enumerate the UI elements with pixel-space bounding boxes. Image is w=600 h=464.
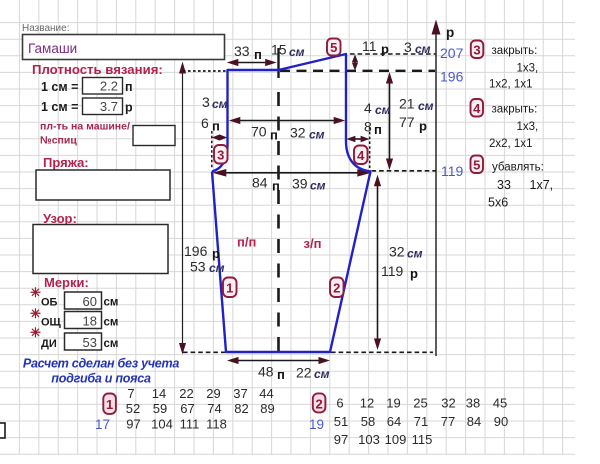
svg-text:104: 104 (151, 417, 173, 432)
svg-text:убавлять:: убавлять: (492, 162, 544, 174)
svg-text:Расчет сделан без учета: Расчет сделан без учета (23, 357, 180, 371)
svg-text:р: р (381, 42, 389, 57)
svg-text:см: см (209, 261, 225, 275)
svg-text:32: 32 (290, 125, 306, 141)
svg-text:3: 3 (202, 94, 210, 110)
svg-text:19: 19 (309, 417, 324, 432)
svg-text:2x2, 1x1: 2x2, 1x1 (489, 138, 532, 150)
svg-text:Пряжа:: Пряжа: (43, 155, 89, 170)
svg-text:см: см (415, 42, 431, 56)
svg-text:р: р (212, 246, 220, 261)
svg-text:5: 5 (473, 158, 480, 173)
svg-text:8: 8 (364, 119, 372, 135)
svg-text:1x2, 1x1: 1x2, 1x1 (489, 79, 532, 91)
svg-text:2: 2 (333, 281, 340, 296)
svg-text:5x6: 5x6 (488, 196, 508, 210)
svg-text:закрыть:: закрыть: (492, 104, 538, 116)
svg-text:115: 115 (412, 432, 433, 447)
svg-text:п: п (374, 122, 382, 137)
svg-text:32: 32 (441, 396, 455, 411)
svg-text:84: 84 (467, 414, 481, 429)
svg-text:3.7: 3.7 (100, 99, 118, 114)
svg-text:70: 70 (251, 124, 267, 140)
svg-text:38: 38 (466, 396, 480, 411)
svg-text:ОБ: ОБ (41, 297, 58, 309)
svg-text:52: 52 (126, 401, 140, 416)
svg-text:74: 74 (207, 401, 221, 416)
svg-text:1x3,: 1x3, (517, 63, 539, 75)
svg-text:р: р (410, 266, 418, 281)
svg-text:Мерки:: Мерки: (44, 275, 89, 290)
svg-text:71: 71 (414, 414, 428, 429)
svg-text:19: 19 (386, 396, 400, 411)
svg-text:32: 32 (389, 244, 405, 260)
svg-text:5: 5 (330, 40, 337, 55)
svg-text:111: 111 (180, 417, 200, 432)
svg-text:89: 89 (260, 401, 274, 416)
svg-text:33: 33 (497, 178, 511, 192)
svg-text:118: 118 (206, 417, 227, 432)
svg-text:п: п (254, 47, 262, 62)
svg-text:см: см (407, 247, 423, 261)
svg-text:44: 44 (259, 386, 273, 401)
svg-text:1 см =: 1 см = (41, 100, 78, 114)
svg-text:4: 4 (473, 101, 481, 116)
svg-text:39: 39 (292, 176, 308, 192)
svg-text:см: см (212, 97, 228, 111)
svg-text:45: 45 (493, 396, 507, 411)
svg-text:103: 103 (358, 432, 380, 447)
svg-text:53: 53 (190, 259, 206, 275)
svg-text:3: 3 (217, 148, 224, 163)
svg-text:п: п (272, 179, 280, 194)
svg-text:✳: ✳ (30, 306, 41, 321)
svg-text:см: см (418, 99, 434, 113)
svg-text:77: 77 (441, 414, 455, 429)
svg-text:4: 4 (364, 100, 372, 116)
svg-text:подгиба и пояса: подгиба и пояса (51, 372, 151, 386)
svg-text:закрыть:: закрыть: (492, 45, 538, 57)
svg-text:82: 82 (234, 401, 248, 416)
svg-text:53: 53 (83, 335, 97, 350)
svg-text:р: р (446, 25, 454, 40)
svg-text:97: 97 (334, 432, 348, 447)
svg-text:см: см (375, 103, 391, 117)
svg-text:18: 18 (83, 314, 97, 329)
svg-text:р: р (419, 119, 427, 134)
svg-text:22: 22 (296, 365, 312, 381)
svg-text:см: см (104, 317, 119, 329)
svg-text:ОЩ: ОЩ (41, 317, 62, 329)
svg-text:з/п: з/п (304, 236, 322, 251)
svg-text:22: 22 (179, 386, 193, 401)
svg-text:207: 207 (440, 45, 464, 61)
svg-text:37: 37 (233, 386, 247, 401)
svg-text:2.2: 2.2 (100, 79, 118, 94)
svg-text:п: п (125, 80, 133, 94)
svg-text:12: 12 (360, 396, 374, 411)
svg-text:пл-ть на машине/: пл-ть на машине/ (40, 121, 130, 133)
svg-text:1x3,: 1x3, (517, 121, 539, 133)
svg-text:7: 7 (127, 386, 134, 401)
svg-text:21: 21 (399, 96, 415, 112)
svg-text:109: 109 (385, 432, 407, 447)
svg-text:Название:: Название: (22, 23, 69, 34)
svg-text:84: 84 (252, 175, 268, 191)
svg-text:см: см (309, 128, 325, 142)
svg-text:п: п (277, 367, 285, 382)
svg-text:см: см (289, 45, 305, 59)
svg-text:6: 6 (336, 396, 343, 411)
svg-text:119: 119 (381, 263, 404, 279)
svg-text:1x7,: 1x7, (530, 178, 554, 192)
svg-text:Плотность вязания:: Плотность вязания: (32, 62, 163, 77)
svg-text:2: 2 (315, 396, 322, 411)
svg-text:48: 48 (258, 364, 274, 380)
svg-text:77: 77 (399, 114, 415, 130)
svg-text:Гамаши: Гамаши (28, 41, 77, 56)
svg-text:97: 97 (126, 417, 140, 432)
svg-text:58: 58 (361, 414, 375, 429)
svg-text:17: 17 (95, 417, 110, 432)
svg-text:см: см (314, 367, 330, 381)
svg-text:90: 90 (494, 414, 508, 429)
svg-text:196: 196 (184, 243, 208, 259)
svg-text:✳: ✳ (30, 285, 41, 300)
svg-text:14: 14 (152, 386, 166, 401)
svg-text:✳: ✳ (30, 325, 41, 340)
svg-text:ДИ: ДИ (41, 338, 57, 350)
svg-text:25: 25 (413, 396, 427, 411)
svg-text:3: 3 (404, 39, 412, 55)
svg-text:59: 59 (153, 401, 167, 416)
svg-text:п/п: п/п (237, 235, 256, 250)
svg-text:3: 3 (473, 43, 480, 58)
svg-text:п: п (212, 119, 220, 134)
svg-text:67: 67 (180, 401, 194, 416)
svg-text:см: см (104, 338, 119, 350)
svg-text:п: п (270, 128, 278, 143)
svg-text:1 см =: 1 см = (41, 80, 78, 94)
svg-text:11: 11 (362, 38, 377, 54)
svg-text:51: 51 (334, 414, 348, 429)
svg-text:119: 119 (441, 163, 464, 179)
svg-text:15: 15 (271, 42, 287, 58)
svg-text:см: см (310, 179, 326, 193)
svg-text:1: 1 (226, 281, 233, 296)
svg-text:р: р (125, 101, 133, 115)
svg-text:64: 64 (387, 414, 401, 429)
svg-text:33: 33 (234, 43, 250, 59)
svg-text:см: см (104, 297, 119, 309)
svg-text:196: 196 (440, 69, 464, 85)
svg-text:60: 60 (83, 294, 97, 309)
svg-text:№спиц: №спиц (40, 135, 77, 147)
svg-text:29: 29 (206, 386, 220, 401)
svg-text:6: 6 (201, 115, 209, 131)
svg-text:1: 1 (106, 397, 113, 412)
svg-text:4: 4 (357, 148, 365, 163)
